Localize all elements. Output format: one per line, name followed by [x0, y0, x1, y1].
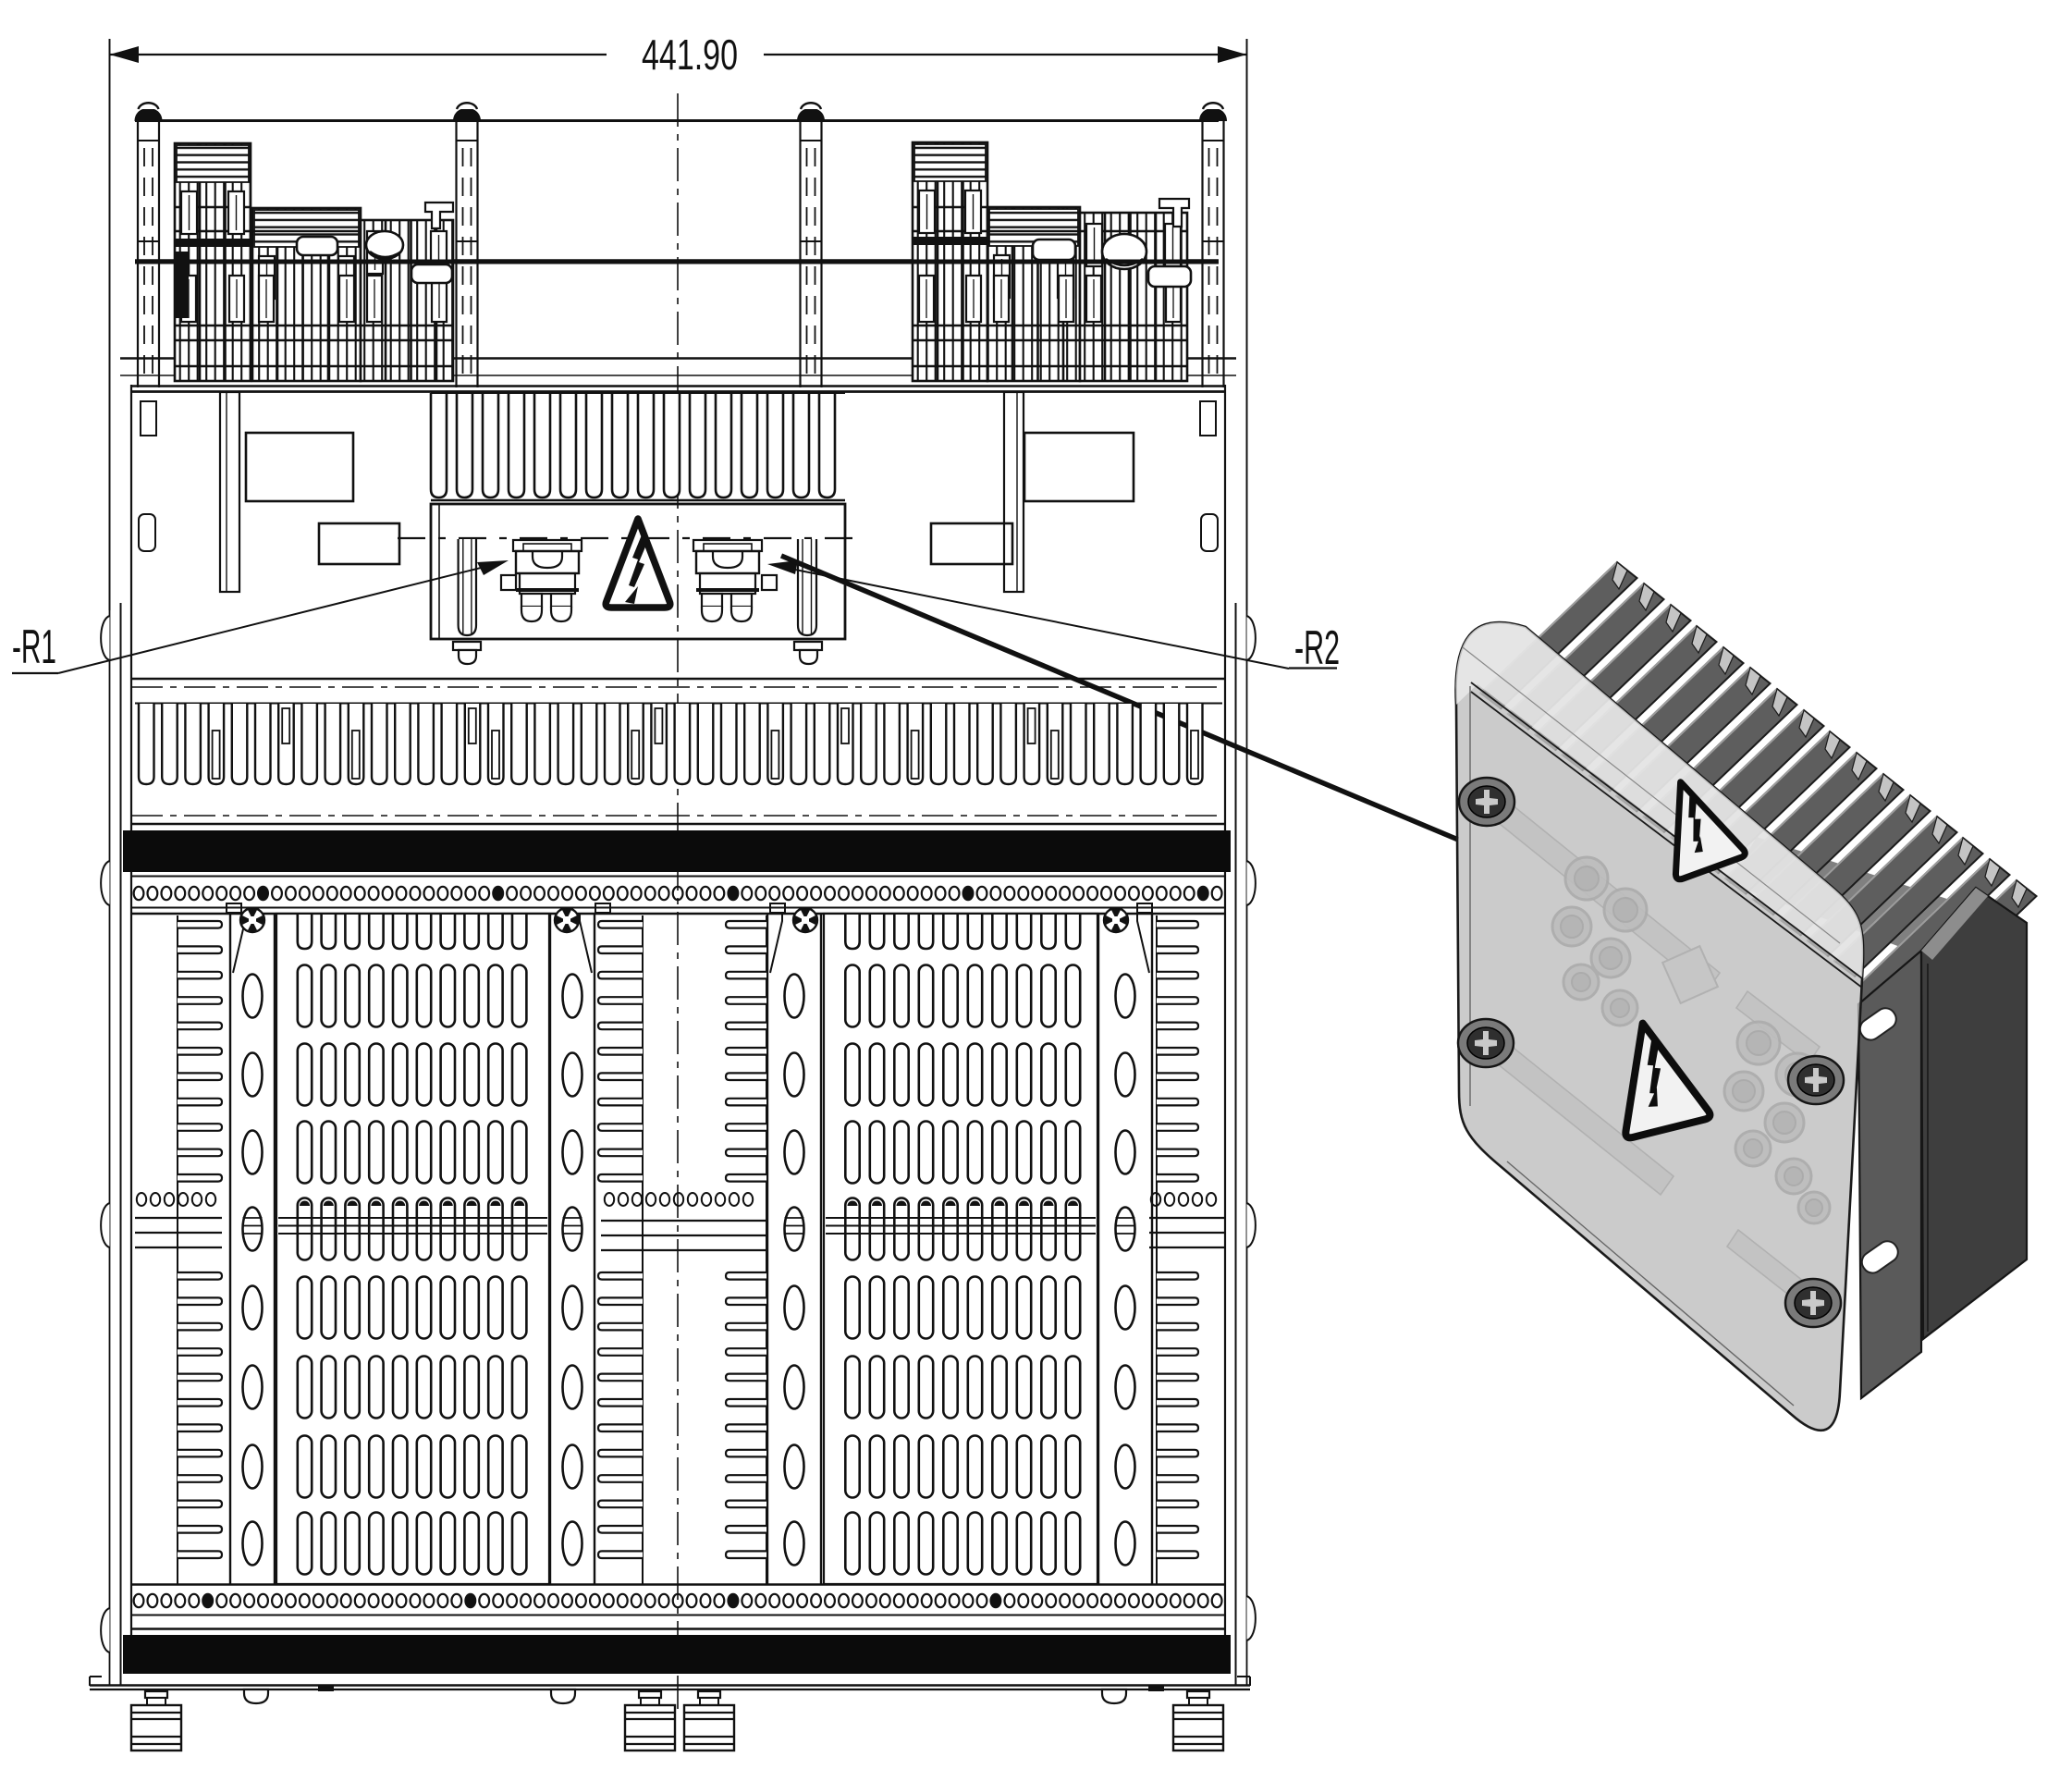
svg-text:-R2: -R2 — [1294, 621, 1340, 675]
svg-text:-R1: -R1 — [12, 620, 56, 674]
svg-text:441.90: 441.90 — [642, 31, 738, 79]
